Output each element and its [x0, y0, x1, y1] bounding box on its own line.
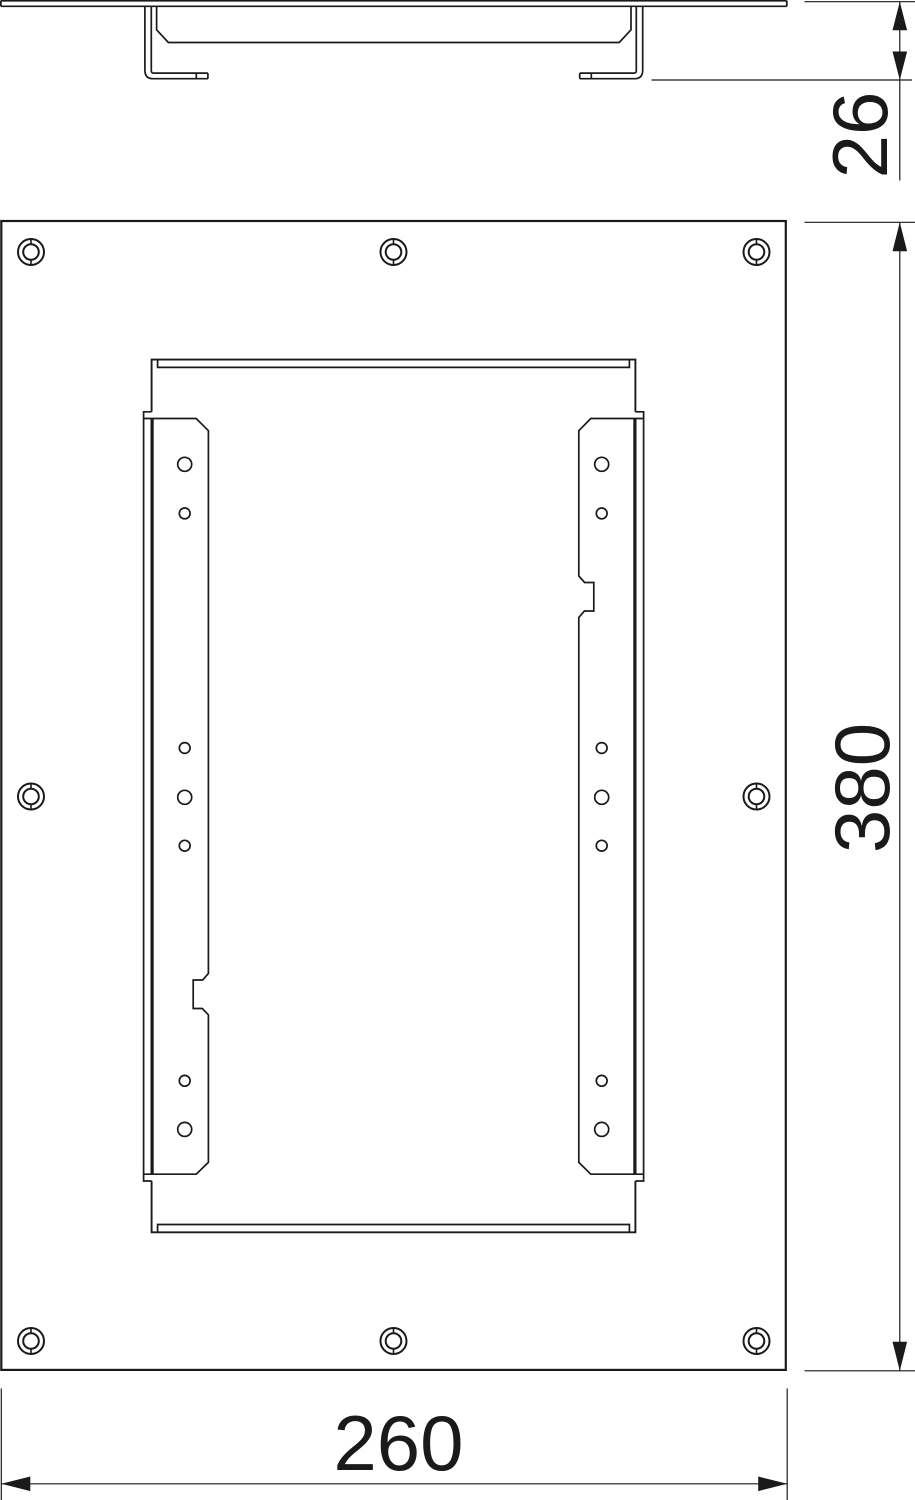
- svg-text:260: 260: [333, 1399, 463, 1487]
- svg-text:26: 26: [816, 92, 904, 179]
- svg-text:380: 380: [818, 723, 906, 853]
